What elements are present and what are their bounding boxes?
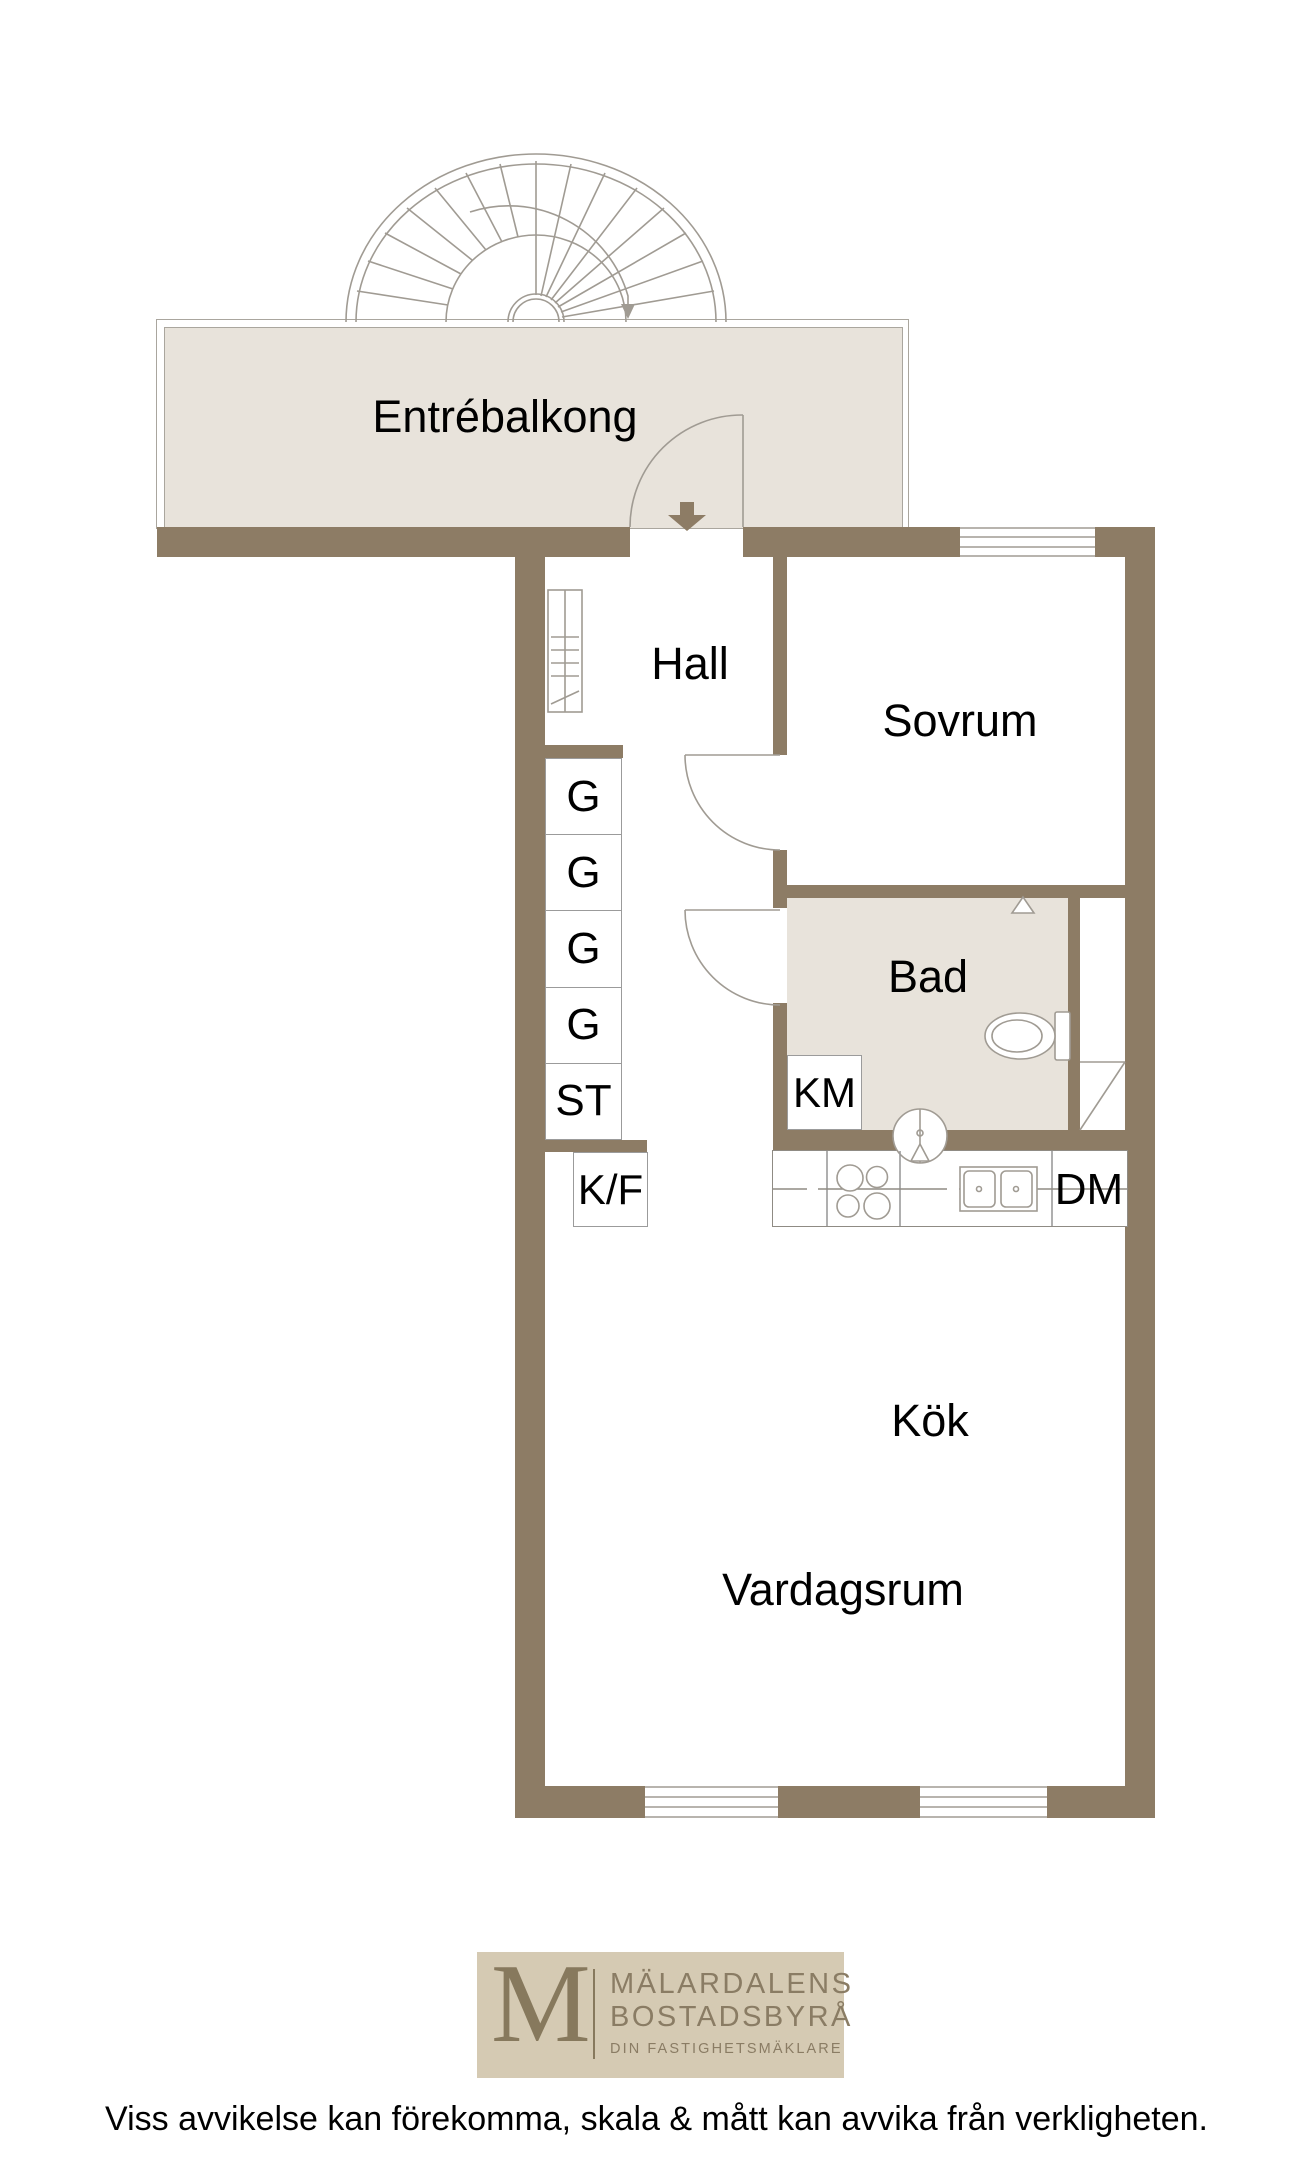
room-label-bathroom: Bad xyxy=(888,951,968,1003)
fridge-freezer-box: K/F xyxy=(573,1152,648,1227)
logo-name-line2: BOSTADSBYRÅ xyxy=(610,2001,853,2034)
spiral-staircase-icon xyxy=(346,154,726,322)
bedroom-window-icon xyxy=(960,527,1095,557)
closet-g1: G xyxy=(546,759,621,834)
washing-machine-box: KM xyxy=(787,1055,862,1130)
closet-g3: G xyxy=(546,910,621,986)
wall-top-left xyxy=(157,527,630,557)
broker-logo: M MÄLARDALENS BOSTADSBYRÅ DIN FASTIGHETS… xyxy=(477,1952,844,2078)
wall-top-right xyxy=(1095,527,1155,557)
wall-bathroom-top xyxy=(787,885,1155,898)
disclaimer-text: Viss avvikelse kan förekomma, skala & må… xyxy=(0,2100,1313,2139)
room-label-balcony: Entrébalkong xyxy=(372,391,637,443)
wall-divider-mid xyxy=(773,850,787,908)
wall-bottom xyxy=(515,1786,1155,1818)
closet-st: ST xyxy=(546,1063,621,1139)
wall-closet-top-stub xyxy=(545,745,623,758)
shaft-diagonal-icon xyxy=(1080,1062,1125,1130)
room-label-hall: Hall xyxy=(651,638,729,690)
bathroom-door-arc-icon xyxy=(685,910,780,1005)
floor-plan: G G G G ST K/F KM xyxy=(0,0,1313,2160)
closet-g4: G xyxy=(546,987,621,1063)
closet-column: G G G G ST xyxy=(545,758,622,1140)
radiator-icon xyxy=(548,590,582,712)
wall-bathroom-east xyxy=(1068,898,1080,1130)
wall-top-mid xyxy=(743,527,960,557)
closet-g2: G xyxy=(546,834,621,910)
room-label-kitchen: Kök xyxy=(891,1395,969,1447)
wall-hall-bedroom-divider xyxy=(773,555,787,755)
bedroom-door-arc-icon xyxy=(685,755,780,850)
wall-divider-low xyxy=(773,1003,787,1150)
logo-tagline: DIN FASTIGHETSMÄKLARE xyxy=(610,2041,853,2057)
dishwasher-label: DM xyxy=(1055,1165,1123,1215)
logo-name-line1: MÄLARDALENS xyxy=(610,1968,853,2001)
wall-right xyxy=(1125,555,1155,1788)
room-label-living-room: Vardagsrum xyxy=(722,1564,964,1616)
logo-divider xyxy=(593,1969,595,2059)
logo-monogram: M xyxy=(491,1940,591,2069)
wall-left xyxy=(515,555,545,1788)
logo-text-block: MÄLARDALENS BOSTADSBYRÅ DIN FASTIGHETSMÄ… xyxy=(610,1968,853,2057)
fridge-freezer-label: K/F xyxy=(578,1166,643,1214)
washing-machine-label: KM xyxy=(793,1069,856,1117)
wall-closet-bottom-stub xyxy=(545,1140,647,1152)
room-label-bedroom: Sovrum xyxy=(882,695,1037,747)
